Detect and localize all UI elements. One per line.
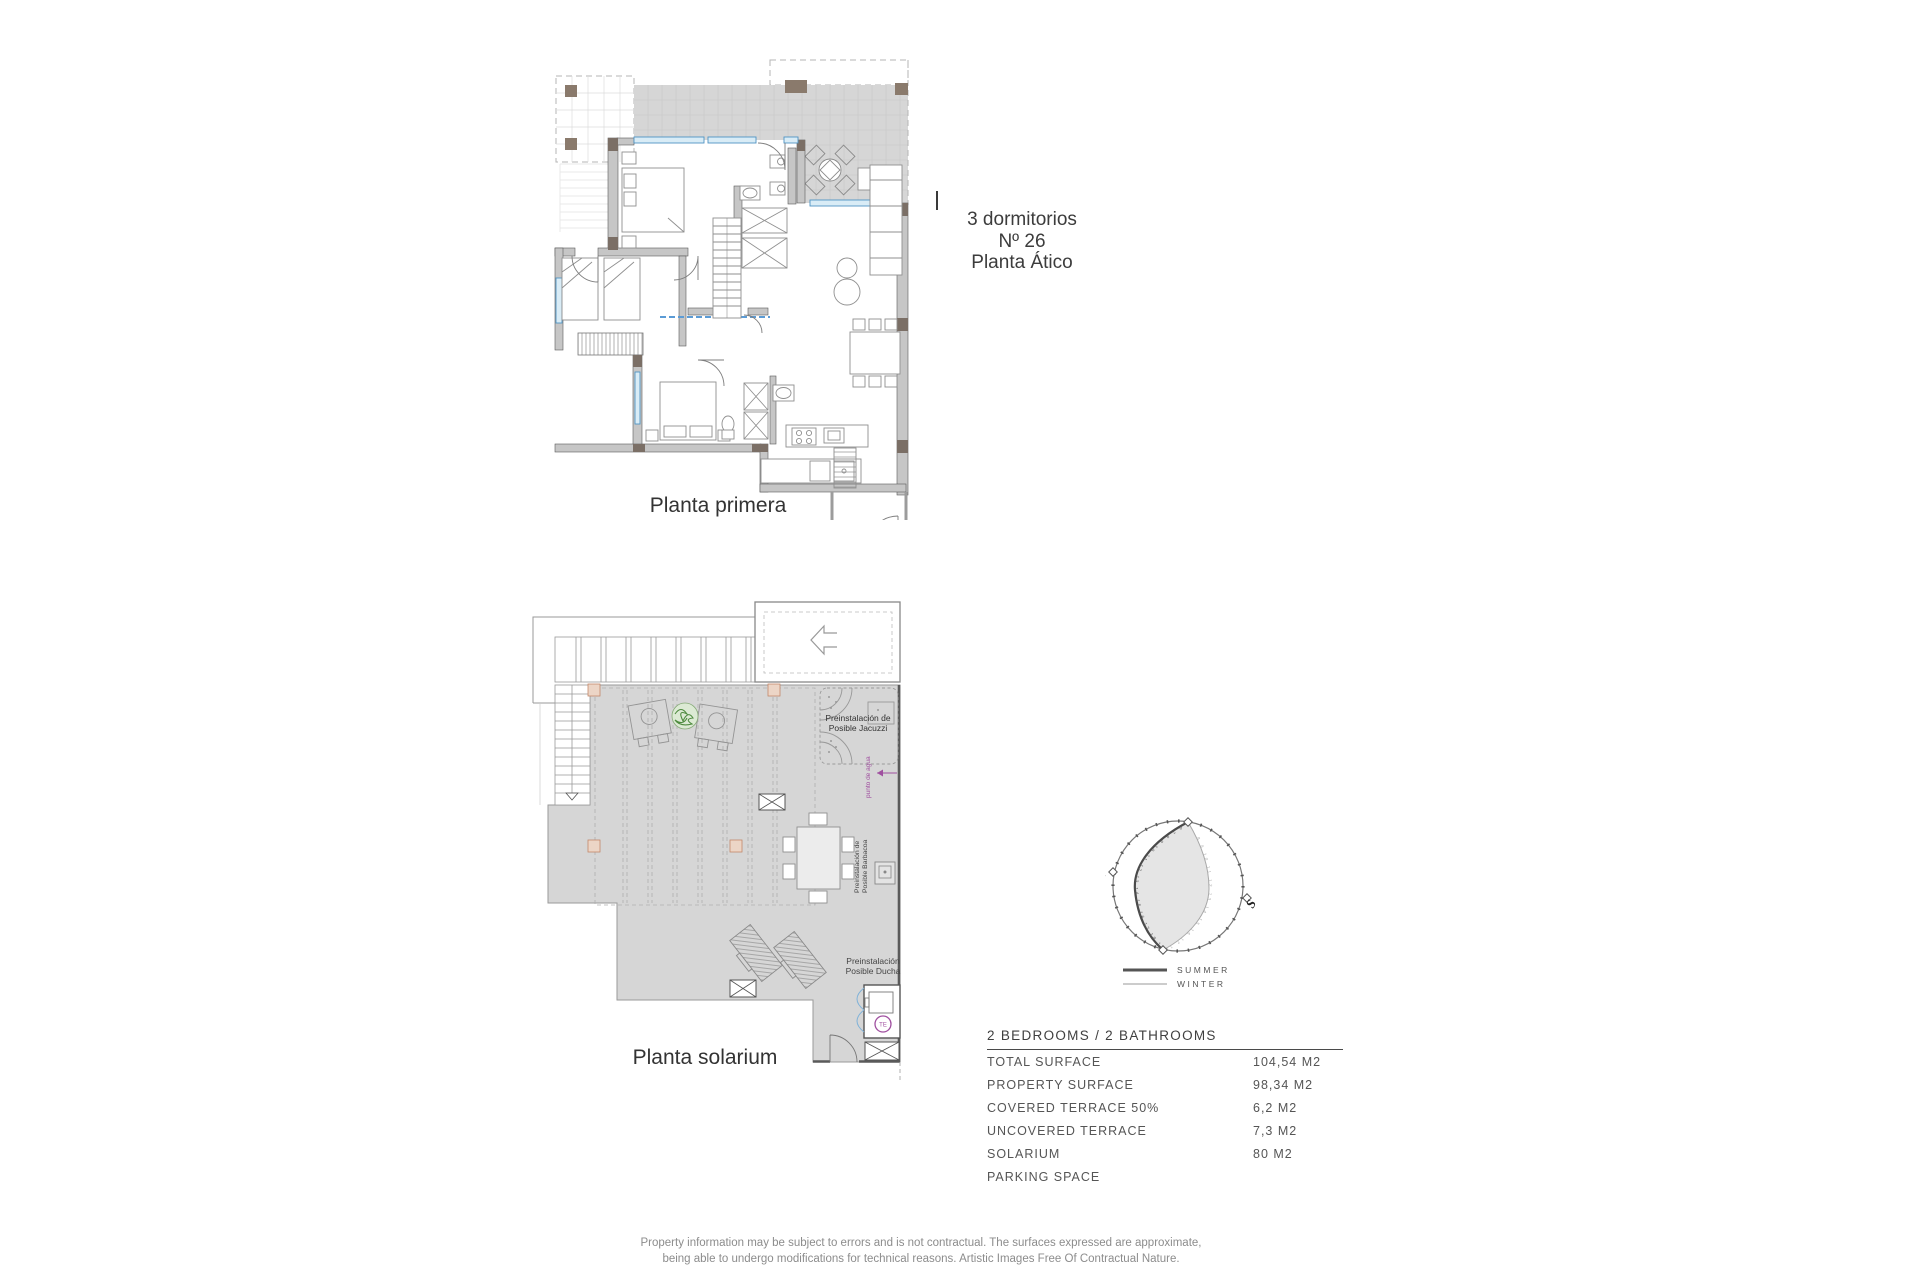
shower-label-line2: Posible Ducha bbox=[846, 966, 901, 976]
first-floor-label: Planta primera bbox=[650, 494, 787, 518]
solarium-plan-drawing: Preinstalación de Posible Jacuzzi punto … bbox=[528, 600, 953, 1090]
shower-label-line1: Preinstalación bbox=[846, 956, 900, 966]
summer-legend-label: SUMMER bbox=[1177, 965, 1230, 975]
spec-label: PARKING SPACE bbox=[987, 1170, 1253, 1184]
spec-value: 80 M2 bbox=[1253, 1147, 1343, 1161]
table-row: PARKING SPACE bbox=[987, 1165, 1343, 1188]
water-heater-label: TE bbox=[879, 1023, 887, 1029]
spec-label: UNCOVERED TERRACE bbox=[987, 1124, 1253, 1138]
disclaimer-footer: Property information may be subject to e… bbox=[560, 1236, 1282, 1267]
stair-access-room bbox=[755, 602, 900, 682]
plant bbox=[672, 703, 698, 729]
spec-label: PROPERTY SURFACE bbox=[987, 1078, 1253, 1092]
unit-number: Nº 26 bbox=[967, 231, 1077, 253]
louver-strip bbox=[578, 333, 643, 355]
sun-legend: SUMMER WINTER bbox=[1123, 965, 1230, 989]
spec-label: SOLARIUM bbox=[987, 1147, 1253, 1161]
spec-value: 98,34 M2 bbox=[1253, 1078, 1343, 1092]
spec-table-header: 2 BEDROOMS / 2 BATHROOMS bbox=[987, 1028, 1343, 1050]
scale-tick-mark bbox=[936, 191, 938, 210]
table-row: UNCOVERED TERRACE 7,3 M2 bbox=[987, 1119, 1343, 1142]
unit-info-block: 3 dormitorios Nº 26 Planta Ático bbox=[967, 209, 1077, 274]
dining-table bbox=[850, 319, 900, 387]
winter-legend-label: WINTER bbox=[1177, 979, 1226, 989]
first-floor-plan-drawing bbox=[548, 40, 960, 520]
spec-label: COVERED TERRACE 50% bbox=[987, 1101, 1253, 1115]
jacuzzi-label-line1: Preinstalación de bbox=[825, 713, 890, 723]
entry-steps bbox=[834, 448, 856, 488]
side-table bbox=[837, 258, 857, 278]
barbecue-label-line2: Posible Barbacoa bbox=[862, 840, 869, 893]
spec-value: 104,54 M2 bbox=[1253, 1055, 1343, 1069]
spec-value: 6,2 M2 bbox=[1253, 1101, 1343, 1115]
sun-path-diagram: 6 7 8 9 10 11 12 13 14 15 16 17 18 19 20… bbox=[1105, 812, 1305, 1012]
unit-bedrooms: 3 dormitorios bbox=[967, 209, 1077, 231]
water-point-label: punto de agua bbox=[865, 756, 872, 798]
barbecue-label-line1: Preinstalación de bbox=[854, 841, 861, 893]
side-table bbox=[834, 279, 860, 305]
spec-value: 7,3 M2 bbox=[1253, 1124, 1343, 1138]
bed-third bbox=[646, 382, 730, 441]
solarium-label: Planta solarium bbox=[633, 1046, 778, 1070]
table-row: PROPERTY SURFACE 98,34 M2 bbox=[987, 1073, 1343, 1096]
north-label: N bbox=[1105, 868, 1109, 885]
unit-floor: Planta Ático bbox=[967, 252, 1077, 274]
beds-twin bbox=[562, 258, 640, 320]
disclaimer-line2: being able to undergo modifications for … bbox=[560, 1252, 1282, 1268]
spec-table: 2 BEDROOMS / 2 BATHROOMS TOTAL SURFACE 1… bbox=[987, 1028, 1343, 1188]
sofa bbox=[858, 165, 902, 275]
pergola-band bbox=[555, 637, 757, 682]
floorplan-sheet: Planta primera 3 dormitorios Nº 26 Plant… bbox=[0, 0, 1920, 1280]
table-row: TOTAL SURFACE 104,54 M2 bbox=[987, 1050, 1343, 1073]
stairs-down bbox=[555, 685, 590, 805]
bed-master bbox=[622, 152, 684, 248]
wardrobes bbox=[742, 208, 787, 439]
stairs bbox=[713, 218, 741, 318]
table-row: SOLARIUM 80 M2 bbox=[987, 1142, 1343, 1165]
table-row: COVERED TERRACE 50% 6,2 M2 bbox=[987, 1096, 1343, 1119]
jacuzzi-label-line2: Posible Jacuzzi bbox=[829, 723, 888, 733]
spec-label: TOTAL SURFACE bbox=[987, 1055, 1253, 1069]
disclaimer-line1: Property information may be subject to e… bbox=[560, 1236, 1282, 1252]
